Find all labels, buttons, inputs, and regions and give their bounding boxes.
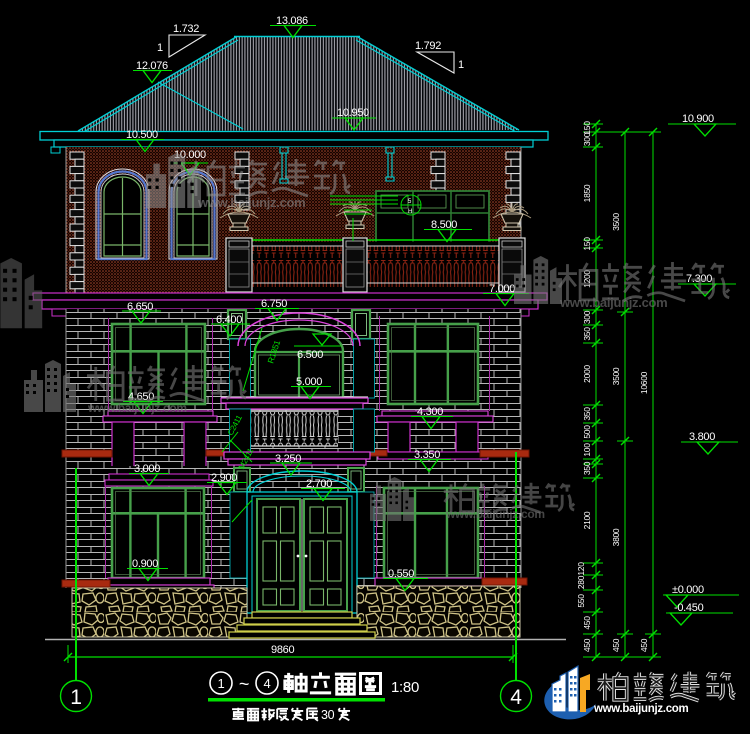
svg-text:www.baijunjz.com: www.baijunjz.com [197,195,305,210]
svg-text:1.732: 1.732 [173,23,199,35]
svg-text:www.baijunjz.com: www.baijunjz.com [87,401,187,415]
svg-text:10.950: 10.950 [337,107,369,119]
svg-text:450: 450 [582,616,592,630]
svg-text:3500: 3500 [611,213,621,231]
svg-text:150: 150 [582,237,592,251]
svg-text:www.baijunjz.com: www.baijunjz.com [559,295,667,310]
svg-text:3.800: 3.800 [689,431,715,443]
svg-text:550: 550 [576,594,586,608]
svg-text:280: 280 [576,575,586,589]
svg-text:450: 450 [611,638,621,652]
svg-text:3800: 3800 [611,528,621,546]
svg-text:100: 100 [582,443,592,457]
svg-text:±0.000: ±0.000 [672,584,704,596]
svg-text:350: 350 [582,461,592,475]
svg-text:H: H [408,209,412,215]
svg-text:450: 450 [582,638,592,652]
svg-text:3500: 3500 [611,367,621,385]
svg-text:350: 350 [582,407,592,421]
svg-text:300: 300 [582,310,592,324]
svg-text:-0.450: -0.450 [674,602,704,614]
svg-text:10600: 10600 [639,371,649,394]
svg-text:1: 1 [218,676,225,691]
svg-text:www.baijunjz.com: www.baijunjz.com [445,507,545,521]
svg-text:300: 300 [582,132,592,146]
svg-text:2000: 2000 [582,365,592,383]
svg-text:9860: 9860 [271,644,294,656]
svg-text:~: ~ [239,674,249,694]
svg-text:1:80: 1:80 [391,679,419,696]
svg-text:350: 350 [582,327,592,341]
svg-text:450: 450 [639,638,649,652]
svg-text:1: 1 [157,42,163,54]
svg-text:30: 30 [321,708,335,722]
svg-text:1: 1 [70,686,81,709]
svg-text:1850: 1850 [582,184,592,202]
svg-text:4: 4 [264,676,271,691]
svg-text:120: 120 [576,562,586,576]
svg-text:500: 500 [582,425,592,439]
svg-text:1.792: 1.792 [415,40,441,52]
svg-text:6.500: 6.500 [297,349,323,361]
svg-text:4: 4 [510,686,522,709]
svg-text:150: 150 [582,121,592,135]
svg-text:2100: 2100 [582,511,592,529]
svg-text:10.900: 10.900 [682,113,714,125]
svg-text:1: 1 [458,59,464,71]
svg-text:www.baijunjz.com: www.baijunjz.com [593,703,689,715]
